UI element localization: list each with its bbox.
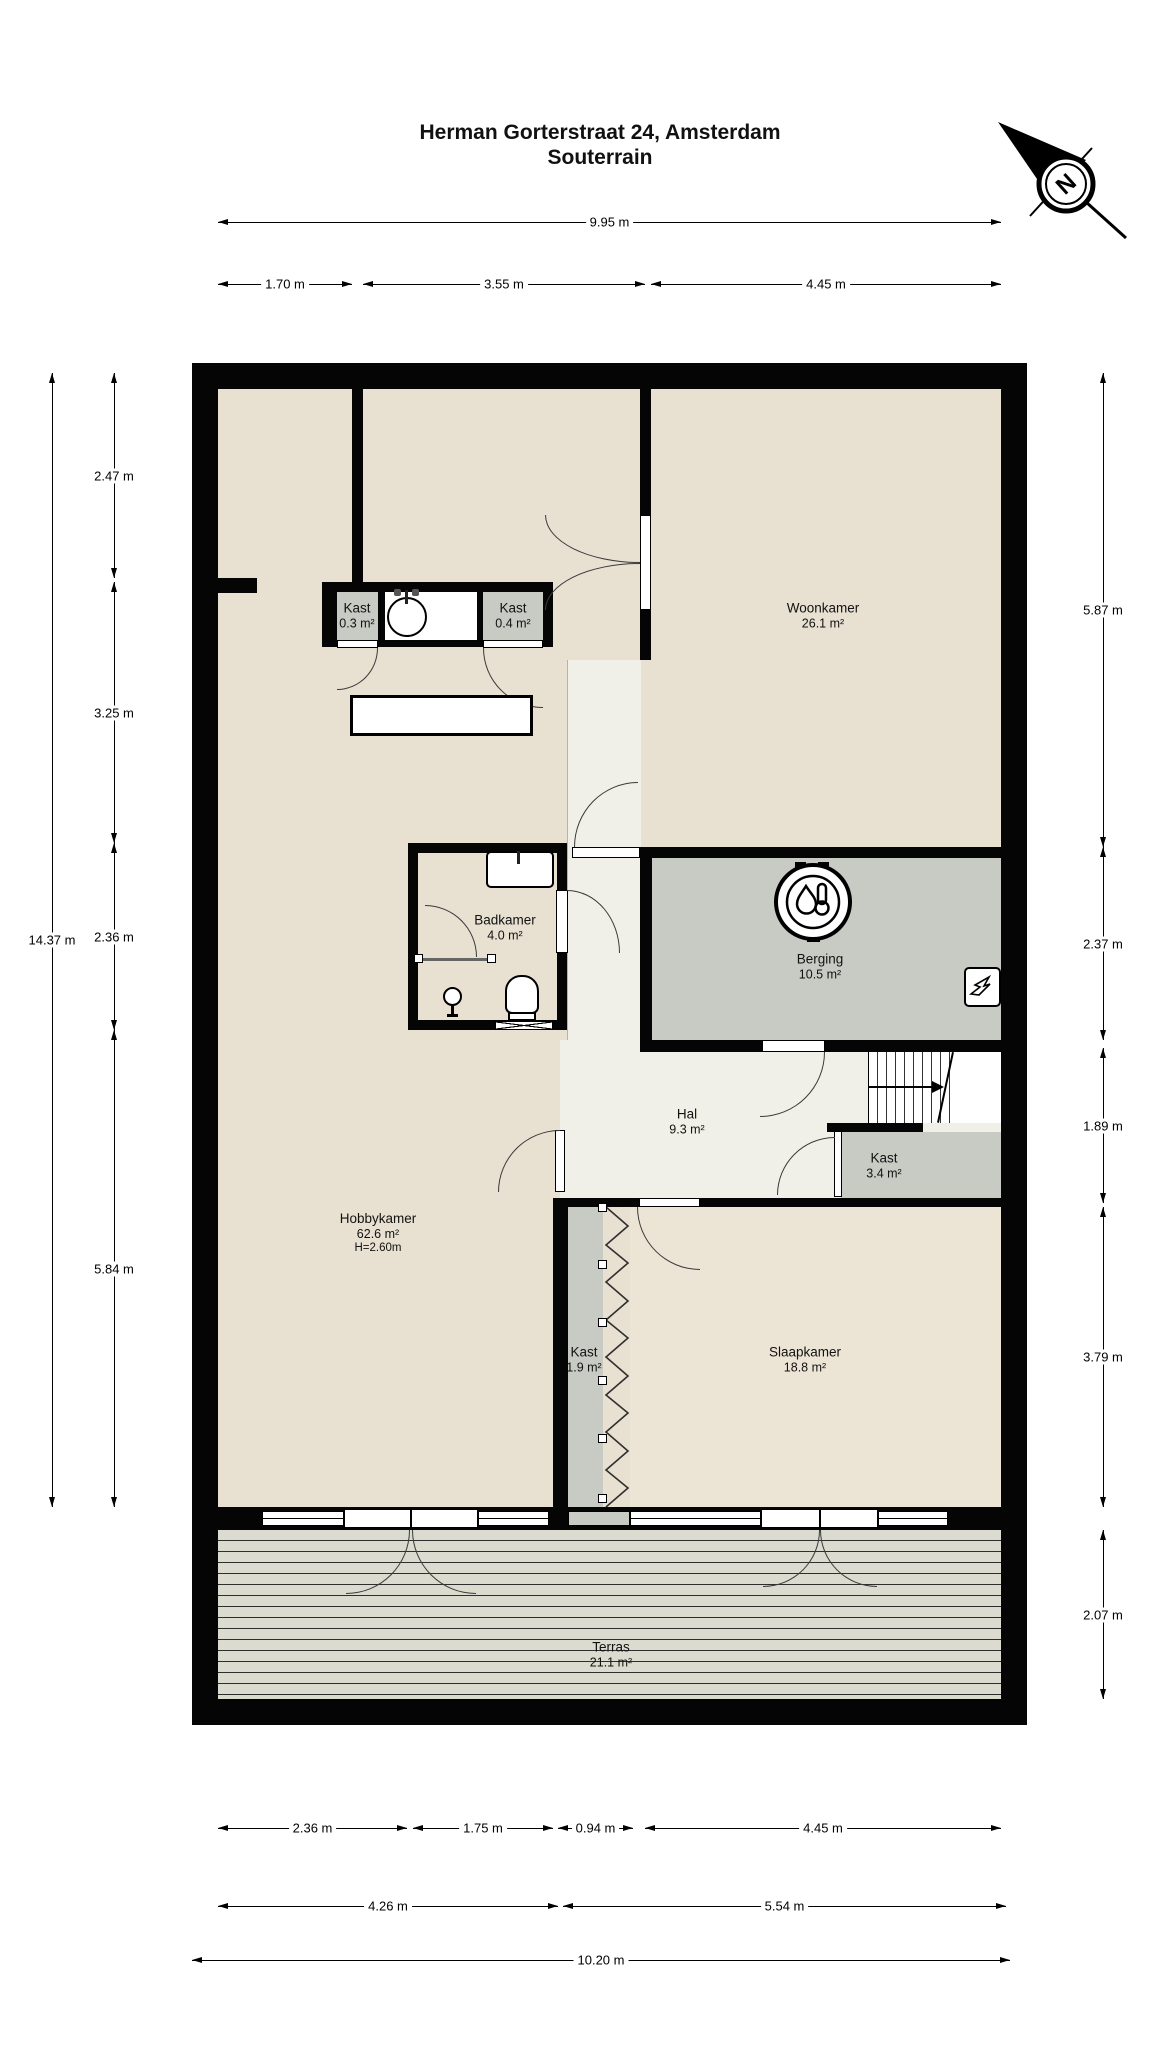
room-label-kast-0-3: Kast 0.3 m² xyxy=(339,601,374,632)
dim-bottom-row2-seg-1: 4.26 m xyxy=(218,1898,558,1914)
room-label-berging: Berging 10.5 m² xyxy=(797,952,844,983)
accordion-hinge-2 xyxy=(598,1260,607,1269)
room-label-kast-1-9: Kast 1.9 m² xyxy=(566,1345,601,1376)
boiler-icon xyxy=(771,860,855,944)
shower-partition-post-right xyxy=(487,954,496,963)
shower-partition-post-left xyxy=(414,954,423,963)
floorplan-page: Herman Gorterstraat 24, Amsterdam Souter… xyxy=(0,0,1152,2048)
dim-top-seg-2: 3.55 m xyxy=(363,276,645,292)
washbasin-handle-left xyxy=(394,589,401,596)
counter xyxy=(350,695,533,736)
door-frame-double-woonkamer xyxy=(640,515,651,610)
dim-left-overall: 14.37 m xyxy=(45,373,59,1507)
washbasin-handle-right xyxy=(412,589,419,596)
dim-right-seg-1: 5.87 m xyxy=(1096,373,1110,847)
wall-woonkamer-left-lower xyxy=(640,610,651,660)
dim-left-seg-1: 2.47 m xyxy=(107,373,121,578)
dim-bottom-row1-seg-2: 1.75 m xyxy=(413,1820,553,1836)
dim-bottom-row1-seg-3: 0.94 m xyxy=(558,1820,633,1836)
washbasin-tap xyxy=(405,590,408,604)
niche-divider-2 xyxy=(477,592,483,640)
dim-top-seg-3: 4.45 m xyxy=(651,276,1001,292)
radiator-squiggle-icon xyxy=(967,972,998,1002)
dim-right-seg-5: 2.07 m xyxy=(1096,1530,1110,1699)
dim-right-seg-4: 3.79 m xyxy=(1096,1207,1110,1507)
kast19-band xyxy=(568,1511,630,1526)
room-label-kast-0-4: Kast 0.4 m² xyxy=(495,601,530,632)
room-label-slaapkamer: Slaapkamer 18.8 m² xyxy=(769,1345,841,1376)
door-frame-kast-0-4 xyxy=(483,640,543,648)
accordion-hinge-4 xyxy=(598,1376,607,1385)
compass-north-icon: N xyxy=(988,112,1134,244)
wall-badkamer-left xyxy=(408,843,418,1030)
room-label-terras: Terras 21.1 m² xyxy=(590,1640,632,1671)
room-label-woonkamer: Woonkamer 26.1 m² xyxy=(787,601,860,632)
door-frame-woonkamer-corridor xyxy=(572,847,640,858)
bathroom-sink-tap xyxy=(517,851,520,864)
niche-wall-top xyxy=(322,582,553,592)
page-title: Herman Gorterstraat 24, Amsterdam Souter… xyxy=(180,120,1020,170)
accordion-hinge-1 xyxy=(598,1203,607,1212)
terrace-door-frame-2-divider xyxy=(819,1509,821,1528)
dim-left-seg-2: 3.25 m xyxy=(107,582,121,843)
title-address: Herman Gorterstraat 24, Amsterdam xyxy=(180,120,1020,145)
shower-partition xyxy=(418,958,496,961)
wall-woonkamer-left-upper xyxy=(640,389,651,515)
wall-nook-vertical xyxy=(352,389,363,583)
terrace-door-frame-1-divider xyxy=(410,1509,412,1528)
wall-woonkamer-bottom xyxy=(640,847,1001,858)
room-label-badkamer: Badkamer 4.0 m² xyxy=(474,913,536,944)
accordion-hinge-6 xyxy=(598,1494,607,1503)
dim-right-seg-3: 1.89 m xyxy=(1096,1048,1110,1203)
outer-wall-bottom xyxy=(192,1699,1027,1725)
room-fill-kast-3-4 xyxy=(841,1132,1001,1198)
door-frame-berging xyxy=(762,1040,825,1052)
title-floor: Souterrain xyxy=(180,145,1020,170)
bathroom-sink-icon xyxy=(486,851,554,888)
door-frame-slaapkamer xyxy=(639,1198,700,1207)
dim-bottom-overall: 10.20 m xyxy=(192,1952,1010,1968)
window-hobbykamer-1 xyxy=(262,1511,344,1526)
dim-bottom-row2-seg-2: 5.54 m xyxy=(563,1898,1006,1914)
room-label-kast-3-4: Kast 3.4 m² xyxy=(866,1151,901,1182)
dim-right-seg-2: 2.37 m xyxy=(1096,847,1110,1040)
outer-wall-top xyxy=(192,363,1027,389)
room-label-hobbykamer: Hobbykamer 62.6 m² H=2.60m xyxy=(340,1211,417,1255)
room-label-hal: Hal 9.3 m² xyxy=(669,1107,704,1138)
niche-wall-left xyxy=(322,592,337,647)
door-frame-kast-3-4 xyxy=(834,1131,842,1197)
vent-grate xyxy=(495,1021,553,1030)
terras-deck xyxy=(218,1530,1001,1699)
dim-left-seg-4: 5.84 m xyxy=(107,1030,121,1507)
window-slaapkamer-1 xyxy=(630,1511,761,1526)
dim-top-overall: 9.95 m xyxy=(218,214,1001,230)
window-slaapkamer-2 xyxy=(878,1511,948,1526)
toilet-icon xyxy=(505,975,539,1014)
accordion-hinge-5 xyxy=(598,1434,607,1443)
window-hobbykamer-2 xyxy=(478,1511,549,1526)
shower-head-base xyxy=(447,1014,458,1017)
toilet-tank xyxy=(508,1012,536,1021)
wall-berging-left xyxy=(640,847,652,1052)
dim-bottom-row1-seg-4: 4.45 m xyxy=(645,1820,1001,1836)
dim-left-seg-3: 2.36 m xyxy=(107,843,121,1030)
door-frame-kast-0-3 xyxy=(337,640,378,648)
stairs-direction-arrow xyxy=(932,1081,944,1093)
wall-slaapkamer-top xyxy=(553,1198,1001,1207)
niche-divider-1 xyxy=(378,592,385,640)
accordion-door-kast-1-9 xyxy=(603,1207,631,1507)
dim-bottom-row1-seg-1: 2.36 m xyxy=(218,1820,407,1836)
accordion-hinge-3 xyxy=(598,1318,607,1327)
wall-nook-stub xyxy=(218,578,257,593)
dim-top-seg-1: 1.70 m xyxy=(218,276,352,292)
stairs-mid-line xyxy=(868,1086,934,1088)
shower-head-icon xyxy=(443,987,462,1006)
